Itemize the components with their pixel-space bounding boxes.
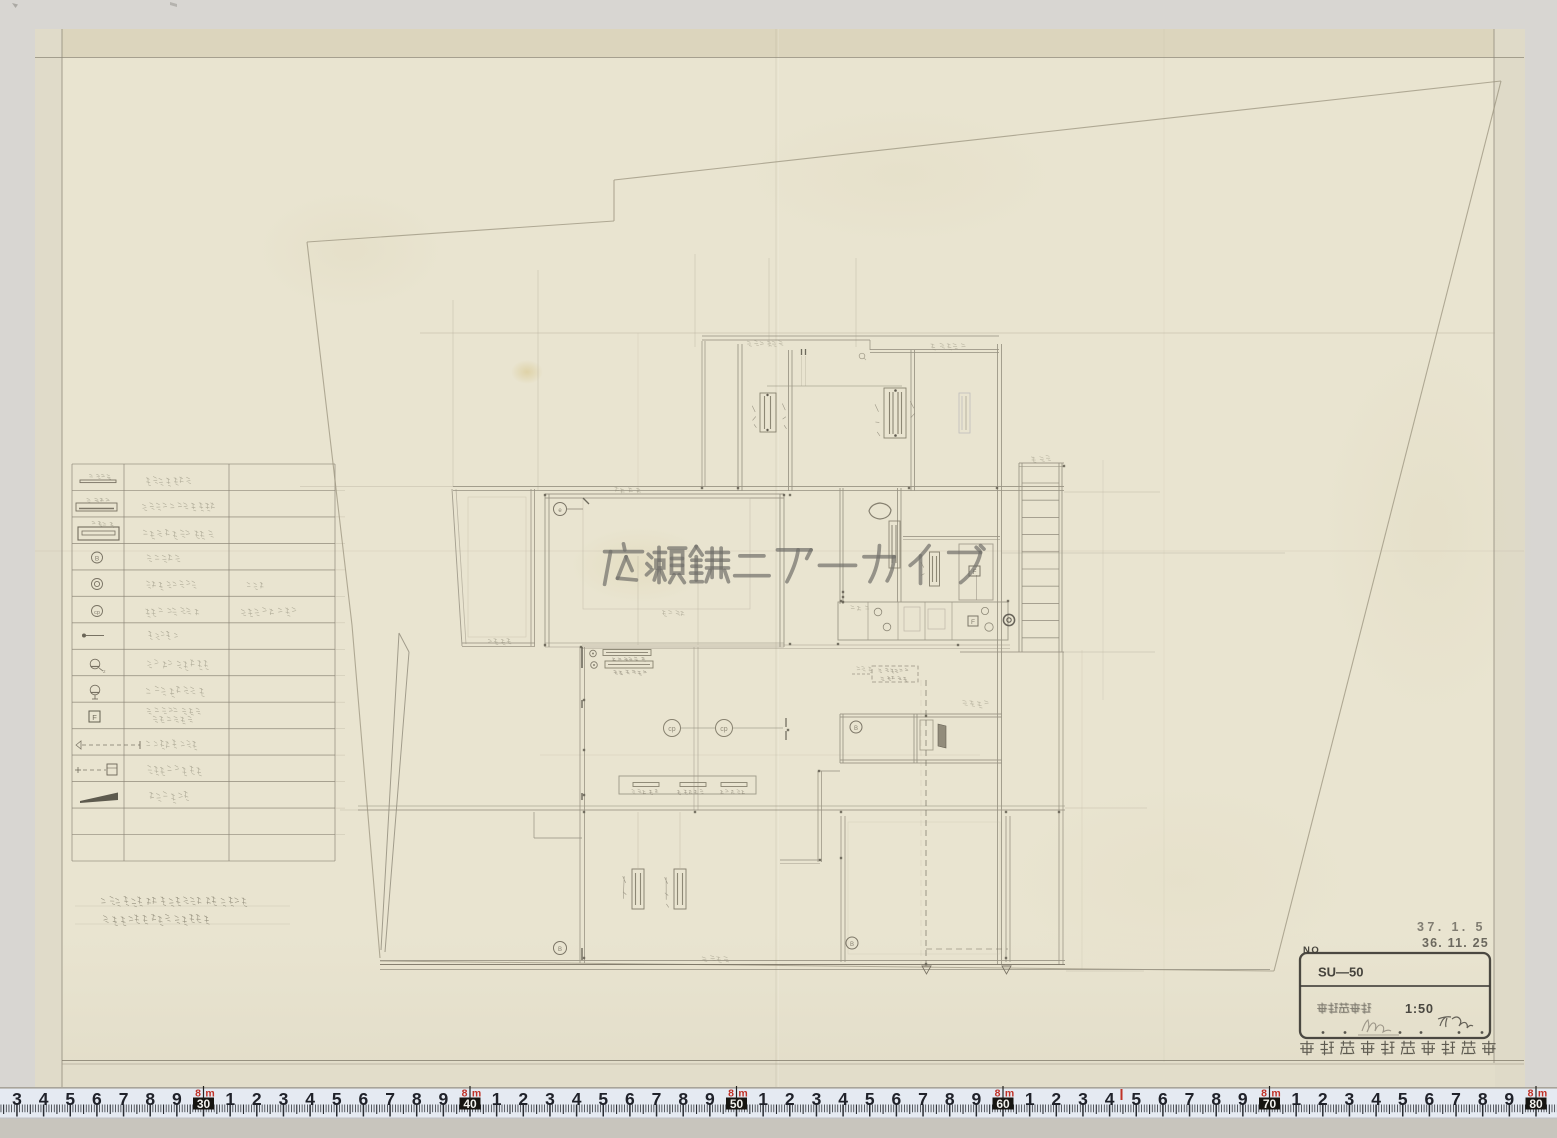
svg-text:7: 7 <box>1451 1089 1461 1109</box>
svg-text:3: 3 <box>812 1089 822 1109</box>
svg-text:8: 8 <box>1211 1089 1221 1109</box>
svg-text:6: 6 <box>892 1089 902 1109</box>
svg-text:8: 8 <box>195 1088 201 1100</box>
svg-text:8: 8 <box>462 1088 468 1100</box>
svg-text:m: m <box>205 1088 214 1100</box>
svg-text:4: 4 <box>838 1089 848 1109</box>
svg-text:7: 7 <box>918 1089 928 1109</box>
svg-text:8: 8 <box>945 1089 955 1109</box>
svg-text:6: 6 <box>1425 1089 1435 1109</box>
svg-text:1: 1 <box>1025 1089 1035 1109</box>
svg-text:5: 5 <box>1131 1089 1141 1109</box>
svg-text:9: 9 <box>972 1089 982 1109</box>
svg-text:4: 4 <box>1105 1089 1115 1109</box>
svg-text:8: 8 <box>145 1089 155 1109</box>
svg-text:B: B <box>558 947 562 953</box>
svg-text:4: 4 <box>39 1089 49 1109</box>
svg-text:9: 9 <box>439 1089 449 1109</box>
svg-text:5: 5 <box>865 1089 875 1109</box>
svg-text:F: F <box>971 619 975 626</box>
svg-text:SU—50: SU—50 <box>1318 965 1364 980</box>
svg-text:m: m <box>738 1088 747 1100</box>
svg-text:36. 11. 25: 36. 11. 25 <box>1422 936 1489 950</box>
svg-text:5: 5 <box>332 1089 342 1109</box>
svg-text:8: 8 <box>412 1089 422 1109</box>
svg-text:2: 2 <box>1318 1089 1328 1109</box>
svg-text:2: 2 <box>252 1089 262 1109</box>
svg-text:4: 4 <box>305 1089 315 1109</box>
svg-text:1: 1 <box>492 1089 502 1109</box>
svg-text:B: B <box>95 555 99 562</box>
svg-text:2: 2 <box>785 1089 795 1109</box>
svg-text:1: 1 <box>225 1089 235 1109</box>
svg-text:4: 4 <box>572 1089 582 1109</box>
svg-text:7: 7 <box>385 1089 395 1109</box>
svg-text:3: 3 <box>12 1089 22 1109</box>
svg-text:cp: cp <box>668 726 676 733</box>
svg-text:cp: cp <box>94 610 100 616</box>
svg-text:5: 5 <box>1398 1089 1408 1109</box>
svg-text:5: 5 <box>598 1089 608 1109</box>
svg-text:9: 9 <box>705 1089 715 1109</box>
svg-text:6: 6 <box>625 1089 635 1109</box>
svg-text:NO: NO <box>1303 945 1320 956</box>
svg-text:3: 3 <box>545 1089 555 1109</box>
svg-text:3: 3 <box>279 1089 289 1109</box>
svg-text:8: 8 <box>995 1088 1001 1100</box>
svg-text:5: 5 <box>65 1089 75 1109</box>
svg-text:1: 1 <box>758 1089 768 1109</box>
svg-text:8: 8 <box>1528 1088 1534 1100</box>
svg-text:2: 2 <box>1051 1089 1061 1109</box>
svg-text:m: m <box>1005 1088 1014 1100</box>
svg-text:7: 7 <box>652 1089 662 1109</box>
svg-text:2: 2 <box>518 1089 528 1109</box>
svg-text:6: 6 <box>359 1089 369 1109</box>
svg-text:cp: cp <box>720 726 728 733</box>
svg-text:1:50: 1:50 <box>1405 1001 1434 1016</box>
svg-text:9: 9 <box>1238 1089 1248 1109</box>
svg-text:m: m <box>1271 1088 1280 1100</box>
svg-text:6: 6 <box>1158 1089 1168 1109</box>
svg-text:7: 7 <box>119 1089 129 1109</box>
svg-text:9: 9 <box>1504 1089 1514 1109</box>
svg-text:F: F <box>92 713 97 722</box>
svg-text:8: 8 <box>1261 1088 1267 1100</box>
svg-text:3: 3 <box>1078 1089 1088 1109</box>
svg-text:4: 4 <box>1371 1089 1381 1109</box>
svg-text:1: 1 <box>1291 1089 1301 1109</box>
svg-text:m: m <box>1538 1088 1547 1100</box>
svg-text:8: 8 <box>1478 1089 1488 1109</box>
svg-text:6: 6 <box>92 1089 102 1109</box>
svg-text:3: 3 <box>1345 1089 1355 1109</box>
svg-text:8: 8 <box>678 1089 688 1109</box>
svg-text:9: 9 <box>172 1089 182 1109</box>
svg-text:8: 8 <box>728 1088 734 1100</box>
svg-text:7: 7 <box>1185 1089 1195 1109</box>
svg-text:37. 1. 5: 37. 1. 5 <box>1417 920 1486 934</box>
svg-text:B: B <box>850 942 854 948</box>
svg-text:m: m <box>472 1088 481 1100</box>
svg-text:B: B <box>854 726 858 732</box>
